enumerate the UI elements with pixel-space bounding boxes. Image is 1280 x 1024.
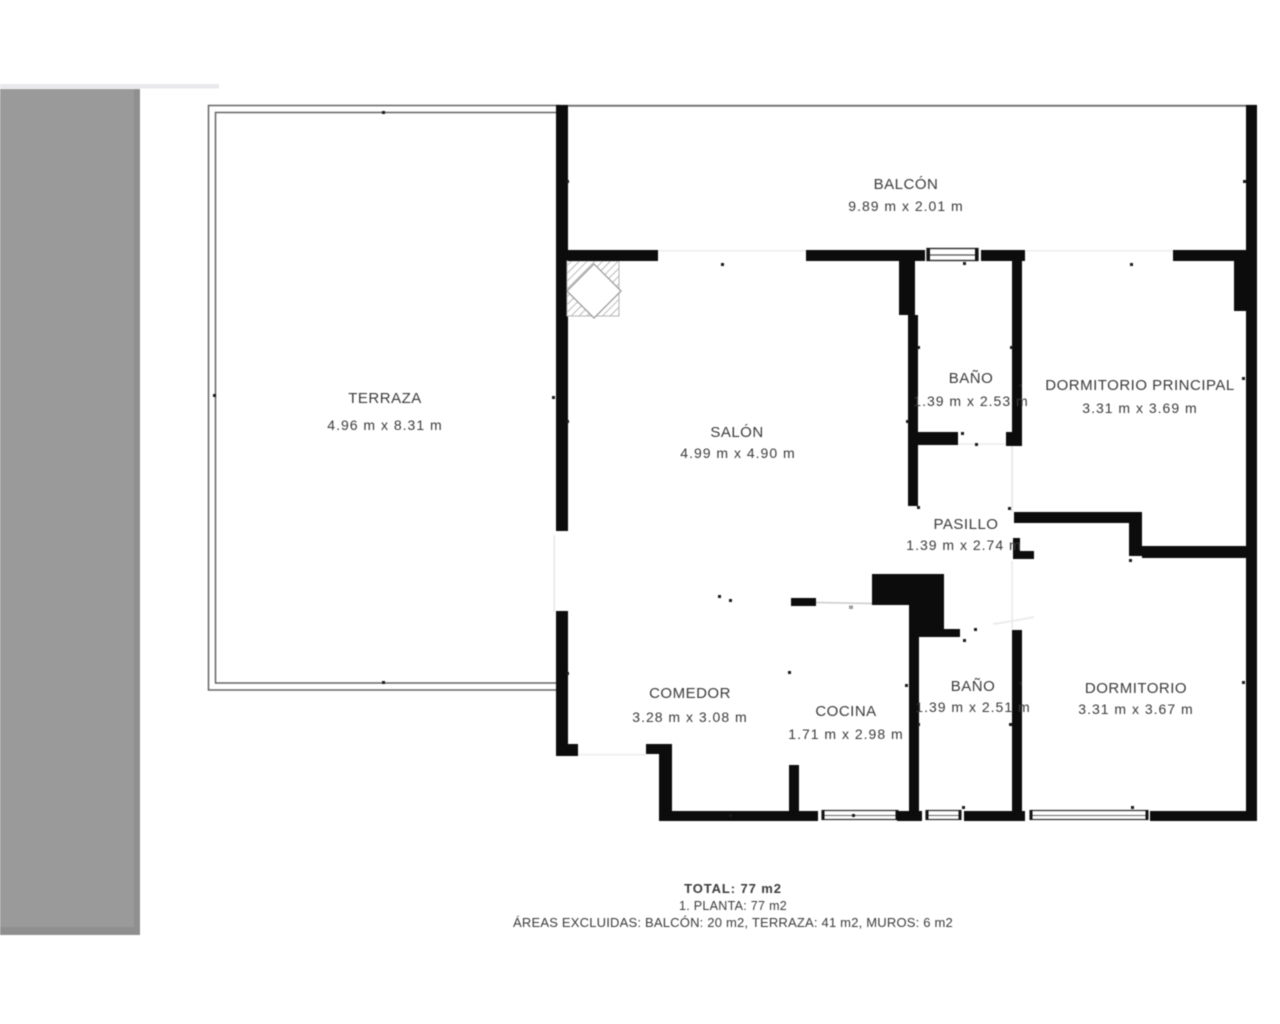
svg-text:3.31 m x 3.69 m: 3.31 m x 3.69 m xyxy=(1082,400,1197,416)
svg-text:COMEDOR: COMEDOR xyxy=(649,685,731,702)
svg-text:BALCÓN: BALCÓN xyxy=(874,176,939,193)
svg-text:TOTAL: 77 m2: TOTAL: 77 m2 xyxy=(684,881,782,896)
svg-text:COCINA: COCINA xyxy=(815,703,876,720)
svg-text:PASILLO: PASILLO xyxy=(934,516,999,533)
svg-text:DORMITORIO PRINCIPAL: DORMITORIO PRINCIPAL xyxy=(1045,377,1234,394)
svg-text:1.39 m x 2.53 m: 1.39 m x 2.53 m xyxy=(913,393,1028,409)
svg-text:9.89 m x 2.01 m: 9.89 m x 2.01 m xyxy=(848,198,963,214)
svg-text:BAÑO: BAÑO xyxy=(951,678,996,695)
svg-text:1.39 m x 2.74 m: 1.39 m x 2.74 m xyxy=(906,537,1021,553)
svg-text:1.39 m x 2.51 m: 1.39 m x 2.51 m xyxy=(915,699,1030,715)
svg-text:SALÓN: SALÓN xyxy=(710,424,763,441)
svg-text:DORMITORIO: DORMITORIO xyxy=(1085,680,1187,697)
svg-text:3.31 m x 3.67 m: 3.31 m x 3.67 m xyxy=(1078,701,1193,717)
svg-text:ÁREAS EXCLUIDAS: BALCÓN: 20 m2: ÁREAS EXCLUIDAS: BALCÓN: 20 m2, TERRAZA:… xyxy=(513,915,953,930)
svg-text:1.71 m x 2.98 m: 1.71 m x 2.98 m xyxy=(788,726,903,742)
svg-text:BAÑO: BAÑO xyxy=(949,370,994,387)
svg-text:1. PLANTA: 77 m2: 1. PLANTA: 77 m2 xyxy=(679,899,787,913)
svg-text:TERRAZA: TERRAZA xyxy=(348,390,422,407)
svg-text:3.28 m x 3.08 m: 3.28 m x 3.08 m xyxy=(632,709,747,725)
svg-text:4.96 m x 8.31 m: 4.96 m x 8.31 m xyxy=(327,417,442,433)
svg-text:4.99 m x 4.90 m: 4.99 m x 4.90 m xyxy=(680,445,795,461)
